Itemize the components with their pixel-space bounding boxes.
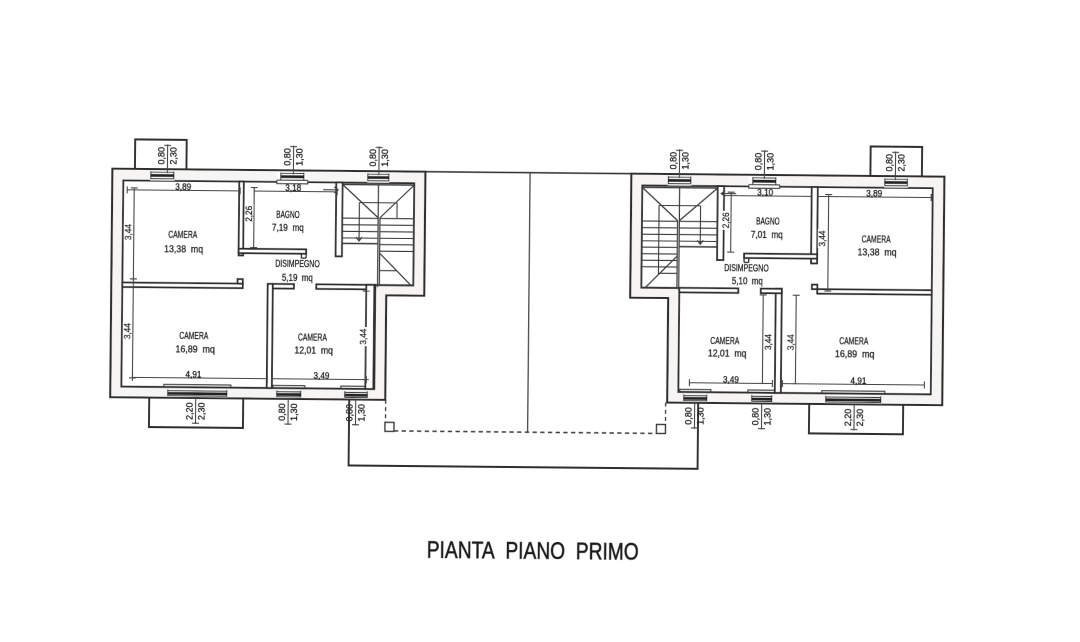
svg-text:2,30: 2,30 [168, 147, 178, 165]
svg-text:2,20: 2,20 [185, 402, 195, 420]
svg-text:BAGNO: BAGNO [756, 216, 780, 227]
svg-text:2,30: 2,30 [855, 409, 865, 427]
svg-text:1,30: 1,30 [680, 152, 690, 170]
svg-text:5,19 mq: 5,19 mq [282, 273, 313, 284]
svg-text:1,30: 1,30 [380, 149, 390, 167]
svg-text:13,38 mq: 13,38 mq [164, 244, 203, 255]
svg-text:DISIMPEGNO: DISIMPEGNO [724, 263, 769, 274]
svg-text:12,01 mq: 12,01 mq [708, 348, 747, 359]
svg-text:1,30: 1,30 [695, 407, 705, 425]
svg-text:1,30: 1,30 [294, 148, 304, 166]
svg-text:0,80: 0,80 [751, 408, 761, 426]
svg-text:2,20: 2,20 [843, 409, 853, 427]
svg-text:CAMERA: CAMERA [710, 336, 739, 347]
svg-text:3,44: 3,44 [763, 334, 773, 350]
svg-text:2,26: 2,26 [244, 206, 254, 222]
svg-text:CAMERA: CAMERA [168, 230, 197, 241]
svg-text:3,10: 3,10 [757, 188, 773, 198]
svg-text:2,30: 2,30 [896, 154, 906, 172]
svg-text:CAMERA: CAMERA [179, 331, 208, 342]
svg-text:16,89 mq: 16,89 mq [175, 345, 215, 356]
svg-text:PIANTA PIANO PRIMO: PIANTA PIANO PRIMO [427, 537, 639, 566]
svg-text:DISIMPEGNO: DISIMPEGNO [275, 259, 320, 270]
svg-text:7,19 mq: 7,19 mq [272, 223, 304, 234]
svg-text:1,30: 1,30 [289, 403, 299, 421]
svg-text:0,80: 0,80 [684, 407, 694, 425]
svg-text:4,91: 4,91 [850, 376, 866, 386]
svg-text:3,18: 3,18 [285, 183, 301, 193]
svg-text:2,30: 2,30 [196, 403, 206, 421]
svg-text:3,44: 3,44 [817, 230, 827, 246]
svg-text:2,26: 2,26 [721, 212, 731, 228]
svg-text:0,80: 0,80 [754, 153, 764, 171]
svg-text:13,38 mq: 13,38 mq [857, 247, 896, 258]
svg-text:3,44: 3,44 [358, 329, 368, 345]
svg-text:12,01 mq: 12,01 mq [294, 346, 333, 357]
svg-text:3,89: 3,89 [866, 189, 882, 199]
svg-text:0,80: 0,80 [885, 154, 895, 172]
svg-text:BAGNO: BAGNO [276, 210, 300, 221]
svg-text:16,89 mq: 16,89 mq [835, 349, 875, 360]
svg-text:3,44: 3,44 [786, 334, 796, 350]
svg-text:3,49: 3,49 [723, 374, 739, 384]
svg-text:CAMERA: CAMERA [839, 336, 868, 347]
svg-text:0,80: 0,80 [669, 152, 679, 170]
svg-text:1,30: 1,30 [356, 404, 366, 422]
svg-text:0,80: 0,80 [157, 147, 167, 165]
svg-text:CAMERA: CAMERA [862, 234, 891, 245]
svg-text:0,80: 0,80 [277, 403, 287, 421]
svg-text:3,44: 3,44 [122, 323, 132, 339]
svg-text:3,44: 3,44 [123, 224, 133, 240]
svg-text:0,80: 0,80 [283, 148, 293, 166]
svg-text:7,01 mq: 7,01 mq [751, 230, 783, 241]
svg-text:5,10 mq: 5,10 mq [732, 276, 763, 287]
svg-text:3,89: 3,89 [175, 182, 191, 192]
svg-text:4,91: 4,91 [185, 369, 201, 379]
svg-text:3,49: 3,49 [313, 370, 329, 380]
svg-text:0,80: 0,80 [368, 149, 378, 167]
svg-text:1,30: 1,30 [762, 408, 772, 426]
svg-text:1,30: 1,30 [765, 153, 775, 171]
svg-text:CAMERA: CAMERA [298, 332, 327, 343]
